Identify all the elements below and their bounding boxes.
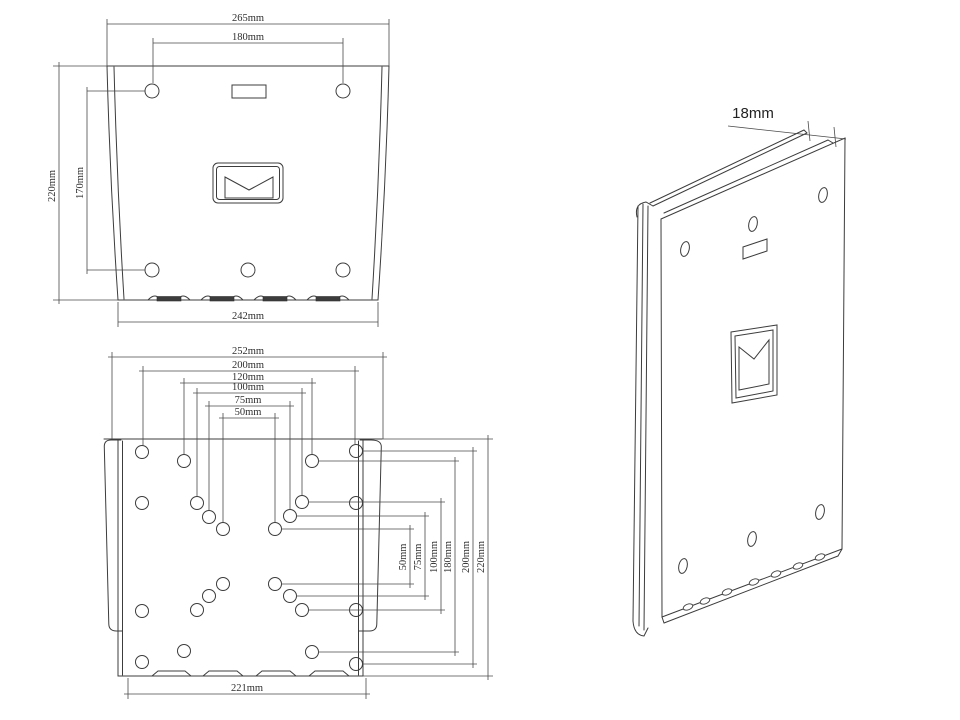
dim-label: 180mm xyxy=(232,32,264,43)
mounting-hole xyxy=(203,511,216,524)
dim-width-bottom: 242mm xyxy=(118,302,378,327)
mounting-hole xyxy=(284,590,297,603)
extension-tick xyxy=(808,121,810,141)
bottom-lip-line xyxy=(664,556,838,623)
bottom-scalloped-edge xyxy=(662,549,842,623)
bottom-tabs xyxy=(152,671,349,676)
brand-logo xyxy=(213,163,283,203)
channel-top-opening xyxy=(650,130,833,213)
mounting-hole xyxy=(296,496,309,509)
mounting-hole xyxy=(814,504,825,520)
mounting-hole xyxy=(677,558,688,574)
dim-width-bottom: 221mm xyxy=(124,678,370,699)
left-edge-thickness xyxy=(633,202,653,636)
vesa-adapter-front-view: 252mm 200mm 120mm 100mm 75mm xyxy=(104,346,493,699)
mounting-hole xyxy=(241,263,255,277)
logo-inner-frame xyxy=(217,167,280,200)
mounting-hole xyxy=(350,658,363,671)
mounting-hole xyxy=(350,497,363,510)
bracket-side-isometric-view: 18mm xyxy=(633,105,846,636)
dim-220-v: 220mm xyxy=(363,435,493,680)
mounting-hole xyxy=(336,84,350,98)
dim-label: 200mm xyxy=(232,360,264,371)
hook-slot-bar xyxy=(316,297,340,302)
brand-logo xyxy=(731,325,777,403)
logo-m-glyph xyxy=(739,340,769,390)
mounting-hole xyxy=(306,646,319,659)
mounting-hole xyxy=(136,605,149,618)
bottom-tab xyxy=(682,603,693,612)
technical-drawing-page: 265mm 180mm 220mm 170mm 242mm xyxy=(0,0,960,720)
mounting-hole xyxy=(136,656,149,669)
dim-label: 242mm xyxy=(232,311,264,322)
mounting-hole xyxy=(679,241,690,257)
top-end-cap xyxy=(636,202,653,217)
back-wall-inner-edge xyxy=(653,133,807,206)
dim-50-h: 50mm xyxy=(219,407,279,522)
top-slot xyxy=(232,85,266,98)
plate-outline xyxy=(107,66,389,300)
edge-line xyxy=(633,206,638,621)
right-side-flange xyxy=(359,440,381,631)
mounting-hole xyxy=(191,604,204,617)
left-side-flange xyxy=(104,440,122,631)
dim-hole-spacing-left: 170mm xyxy=(75,87,145,274)
bottom-tab xyxy=(721,588,732,597)
mounting-hole xyxy=(746,531,757,547)
logo-inner-frame xyxy=(735,330,773,398)
hook-slot-bar xyxy=(157,297,181,302)
mounting-hole xyxy=(269,578,282,591)
edge-line xyxy=(639,204,643,626)
mounting-hole xyxy=(747,216,758,232)
mounting-hole xyxy=(336,263,350,277)
dim-label: 100mm xyxy=(429,541,440,573)
mounting-hole xyxy=(178,455,191,468)
bottom-tab xyxy=(792,562,803,571)
dim-label: 265mm xyxy=(232,13,264,24)
dim-label: 50mm xyxy=(398,544,409,571)
dim-label: 75mm xyxy=(413,544,424,571)
dim-label: 220mm xyxy=(47,170,58,202)
mounting-hole xyxy=(178,645,191,658)
mounting-hole xyxy=(145,84,159,98)
mounting-hole xyxy=(296,604,309,617)
bottom-tab xyxy=(203,671,243,676)
dim-label: 180mm xyxy=(443,541,454,573)
dim-label: 100mm xyxy=(232,382,264,393)
mounting-hole xyxy=(217,578,230,591)
technical-drawing-canvas: 265mm 180mm 220mm 170mm 242mm xyxy=(0,0,960,720)
dim-label: 75mm xyxy=(235,395,262,406)
mounting-hole xyxy=(284,510,297,523)
edge-line xyxy=(644,206,648,630)
dim-label: 50mm xyxy=(235,407,262,418)
wall-plate-front-view: 265mm 180mm 220mm 170mm 242mm xyxy=(47,13,389,327)
mounting-hole xyxy=(136,446,149,459)
dim-label: 170mm xyxy=(75,167,86,199)
mounting-hole xyxy=(350,445,363,458)
front-wall-inner-edge xyxy=(664,140,828,213)
vesa-mounting-holes xyxy=(136,445,363,671)
dim-label: 200mm xyxy=(461,541,472,573)
mounting-hole xyxy=(306,455,319,468)
hook-slot-bar xyxy=(210,297,234,302)
hook-slot-bar xyxy=(263,297,287,302)
mounting-hole xyxy=(817,187,828,203)
dim-label: 221mm xyxy=(231,683,263,694)
bottom-tab xyxy=(748,578,759,587)
mounting-hole xyxy=(145,263,159,277)
bottom-tab xyxy=(309,671,349,676)
bottom-tab xyxy=(699,597,710,606)
dim-hole-spacing-top: 180mm xyxy=(153,32,343,83)
extension-tick xyxy=(834,127,836,147)
dim-100-v: 100mm xyxy=(308,498,445,614)
bottom-tab xyxy=(814,553,825,562)
bottom-end-cap xyxy=(633,621,648,636)
dim-label: 220mm xyxy=(476,541,487,573)
front-face-holes xyxy=(677,187,828,574)
bottom-tab xyxy=(152,671,191,676)
opening-end-line xyxy=(804,130,807,133)
leader-line xyxy=(728,126,846,139)
logo-m-glyph xyxy=(225,177,273,198)
bottom-lip-corner xyxy=(662,617,664,623)
mounting-hole xyxy=(203,590,216,603)
bottom-tab xyxy=(770,570,781,579)
dim-label: 18mm xyxy=(732,105,774,122)
mounting-hole xyxy=(269,523,282,536)
mounting-hole xyxy=(191,497,204,510)
top-slot xyxy=(743,239,767,259)
dim-label: 252mm xyxy=(232,346,264,357)
dim-50-v: 50mm xyxy=(281,525,414,588)
mounting-hole xyxy=(217,523,230,536)
bottom-tab xyxy=(256,671,296,676)
opening-end-line xyxy=(828,140,833,143)
mounting-hole xyxy=(136,497,149,510)
